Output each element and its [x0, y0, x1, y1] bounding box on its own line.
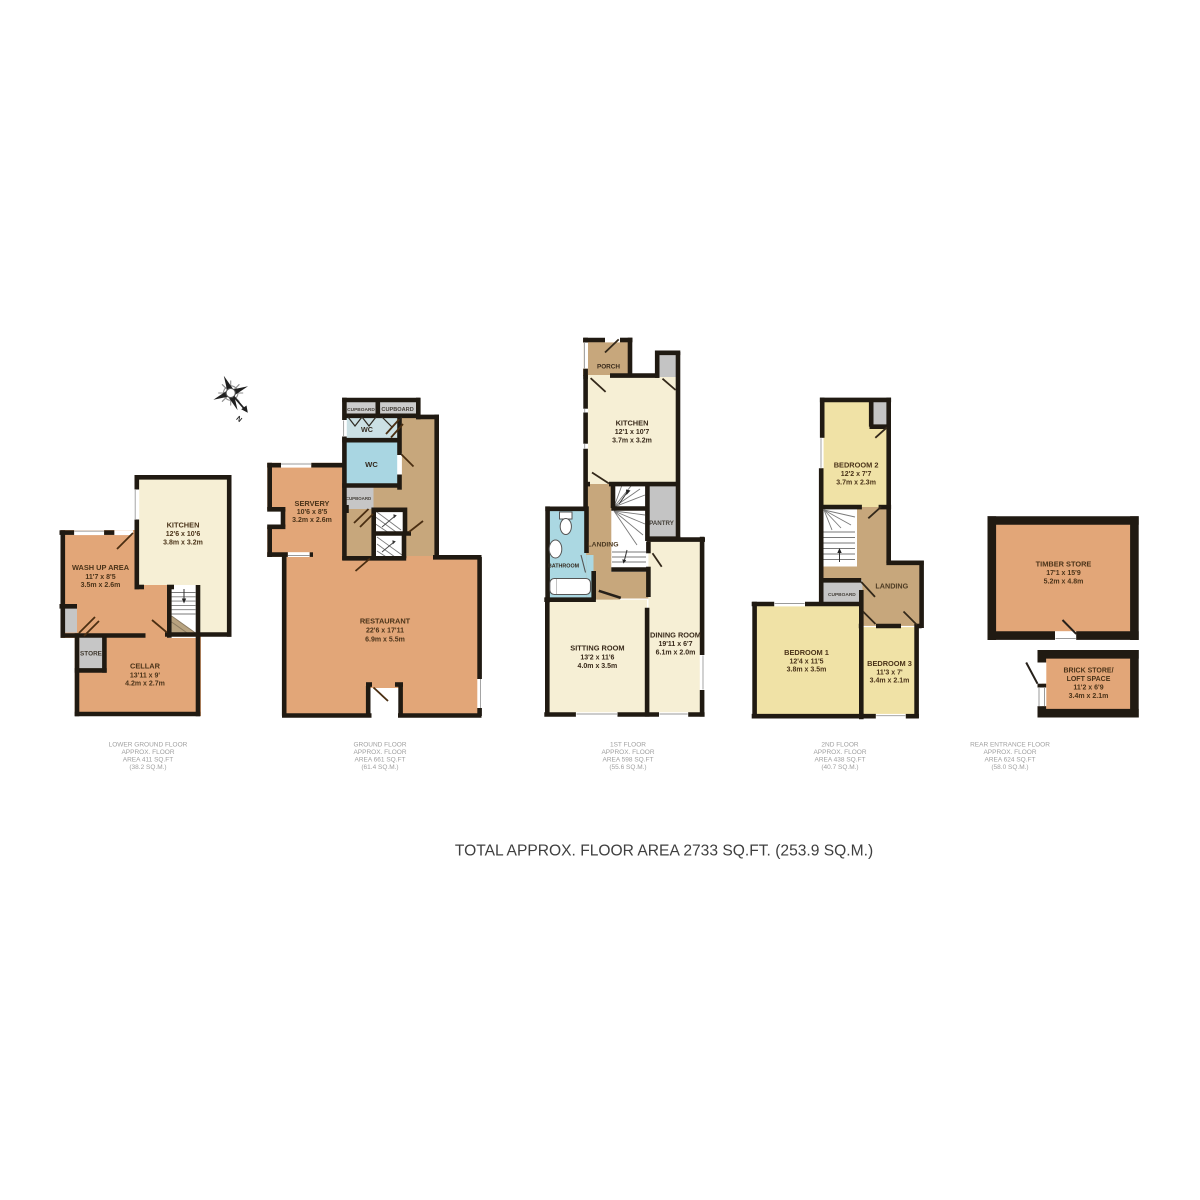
svg-text:(55.6 SQ.M.): (55.6 SQ.M.): [609, 764, 646, 771]
svg-text:GROUND FLOOR: GROUND FLOOR: [353, 742, 406, 749]
svg-text:AREA 624 SQ.FT: AREA 624 SQ.FT: [985, 757, 1036, 764]
svg-text:19'11 x 6'7: 19'11 x 6'7: [658, 641, 692, 648]
svg-text:WC: WC: [365, 460, 378, 469]
svg-text:BEDROOM 2: BEDROOM 2: [834, 461, 879, 470]
svg-text:LANDING: LANDING: [588, 542, 619, 549]
svg-text:BEDROOM 1: BEDROOM 1: [784, 648, 829, 657]
svg-text:12'2 x 7'7: 12'2 x 7'7: [841, 471, 872, 478]
svg-text:REAR ENTRANCE FLOOR: REAR ENTRANCE FLOOR: [970, 742, 1050, 749]
svg-text:(58.0 SQ.M.): (58.0 SQ.M.): [991, 764, 1028, 771]
svg-text:PORCH: PORCH: [597, 363, 620, 370]
svg-text:AREA 598 SQ.FT: AREA 598 SQ.FT: [603, 757, 654, 764]
svg-text:CUPBOARD: CUPBOARD: [346, 496, 371, 501]
svg-text:WC: WC: [361, 425, 373, 434]
svg-text:CUPBOARD: CUPBOARD: [347, 407, 375, 413]
svg-text:(40.7 SQ.M.): (40.7 SQ.M.): [821, 764, 858, 771]
svg-text:(38.2 SQ.M.): (38.2 SQ.M.): [129, 764, 166, 771]
svg-text:11'2 x 6'9: 11'2 x 6'9: [1073, 685, 1103, 692]
svg-text:10'6 x 8'5: 10'6 x 8'5: [297, 509, 328, 516]
svg-text:BRICK STORE/: BRICK STORE/: [1063, 668, 1113, 675]
svg-text:5.2m x 4.8m: 5.2m x 4.8m: [1044, 579, 1084, 586]
svg-text:WASH UP AREA: WASH UP AREA: [72, 563, 130, 572]
svg-text:3.2m x 2.6m: 3.2m x 2.6m: [292, 517, 332, 524]
svg-text:CUPBOARD: CUPBOARD: [381, 407, 413, 413]
svg-text:3.7m x 2.3m: 3.7m x 2.3m: [836, 480, 876, 487]
svg-text:APPROX. FLOOR: APPROX. FLOOR: [983, 749, 1036, 756]
svg-text:APPROX. FLOOR: APPROX. FLOOR: [813, 749, 866, 756]
svg-text:APPROX. FLOOR: APPROX. FLOOR: [601, 749, 654, 756]
svg-text:LOFT SPACE: LOFT SPACE: [1067, 676, 1111, 683]
svg-text:DINING ROOM: DINING ROOM: [650, 631, 701, 640]
svg-text:TIMBER STORE: TIMBER STORE: [1036, 560, 1092, 569]
svg-text:AREA 661 SQ.FT: AREA 661 SQ.FT: [355, 757, 406, 764]
svg-text:RESTAURANT: RESTAURANT: [360, 617, 411, 626]
svg-text:2ND FLOOR: 2ND FLOOR: [821, 742, 859, 749]
svg-text:13'2 x 11'6: 13'2 x 11'6: [580, 655, 614, 662]
svg-text:SERVERY: SERVERY: [295, 499, 330, 508]
svg-text:1ST FLOOR: 1ST FLOOR: [610, 742, 646, 749]
svg-text:3.7m x 3.2m: 3.7m x 3.2m: [612, 438, 652, 445]
svg-text:TOTAL APPROX. FLOOR AREA 2733: TOTAL APPROX. FLOOR AREA 2733 SQ.FT. (25…: [455, 843, 873, 860]
svg-text:4.2m x 2.7m: 4.2m x 2.7m: [125, 681, 165, 688]
svg-text:4.0m x 3.5m: 4.0m x 3.5m: [578, 663, 618, 670]
svg-text:12'1 x 10'7: 12'1 x 10'7: [615, 429, 650, 436]
svg-text:13'11 x 9': 13'11 x 9': [130, 673, 161, 680]
svg-text:6.1m x 2.0m: 6.1m x 2.0m: [656, 650, 696, 657]
svg-text:11'3 x 7': 11'3 x 7': [876, 670, 903, 677]
svg-text:APPROX. FLOOR: APPROX. FLOOR: [353, 749, 406, 756]
svg-text:PANTRY: PANTRY: [649, 520, 675, 527]
svg-text:CELLAR: CELLAR: [130, 662, 161, 671]
svg-text:LOWER GROUND FLOOR: LOWER GROUND FLOOR: [109, 742, 188, 749]
svg-text:6.9m x 5.5m: 6.9m x 5.5m: [365, 637, 405, 644]
svg-text:3.8m x 3.5m: 3.8m x 3.5m: [787, 667, 827, 674]
svg-text:SITTING ROOM: SITTING ROOM: [570, 644, 624, 653]
svg-text:3.5m x 2.6m: 3.5m x 2.6m: [81, 582, 121, 589]
svg-text:3.4m x 2.1m: 3.4m x 2.1m: [1069, 693, 1109, 700]
svg-text:STORE: STORE: [80, 651, 103, 658]
svg-text:BEDROOM 3: BEDROOM 3: [867, 659, 912, 668]
svg-text:12'6 x 10'6: 12'6 x 10'6: [166, 531, 201, 538]
svg-text:17'1 x 15'9: 17'1 x 15'9: [1046, 570, 1081, 577]
svg-text:3.8m x 3.2m: 3.8m x 3.2m: [163, 540, 203, 547]
svg-text:22'6 x 17'11: 22'6 x 17'11: [366, 628, 404, 635]
svg-text:AREA 438 SQ.FT: AREA 438 SQ.FT: [815, 757, 866, 764]
svg-text:11'7 x 8'5: 11'7 x 8'5: [85, 574, 115, 581]
svg-text:CUPBOARD: CUPBOARD: [828, 592, 856, 598]
svg-text:KITCHEN: KITCHEN: [167, 520, 200, 529]
svg-text:12'4 x 11'5: 12'4 x 11'5: [789, 659, 823, 666]
svg-text:3.4m x 2.1m: 3.4m x 2.1m: [870, 678, 910, 685]
svg-text:(61.4 SQ.M.): (61.4 SQ.M.): [361, 764, 398, 771]
svg-text:AREA 411 SQ.FT: AREA 411 SQ.FT: [123, 757, 173, 764]
svg-text:KITCHEN: KITCHEN: [616, 419, 649, 428]
svg-text:LANDING: LANDING: [875, 582, 908, 591]
svg-text:APPROX. FLOOR: APPROX. FLOOR: [121, 749, 174, 756]
svg-text:BATHROOM: BATHROOM: [548, 564, 580, 570]
